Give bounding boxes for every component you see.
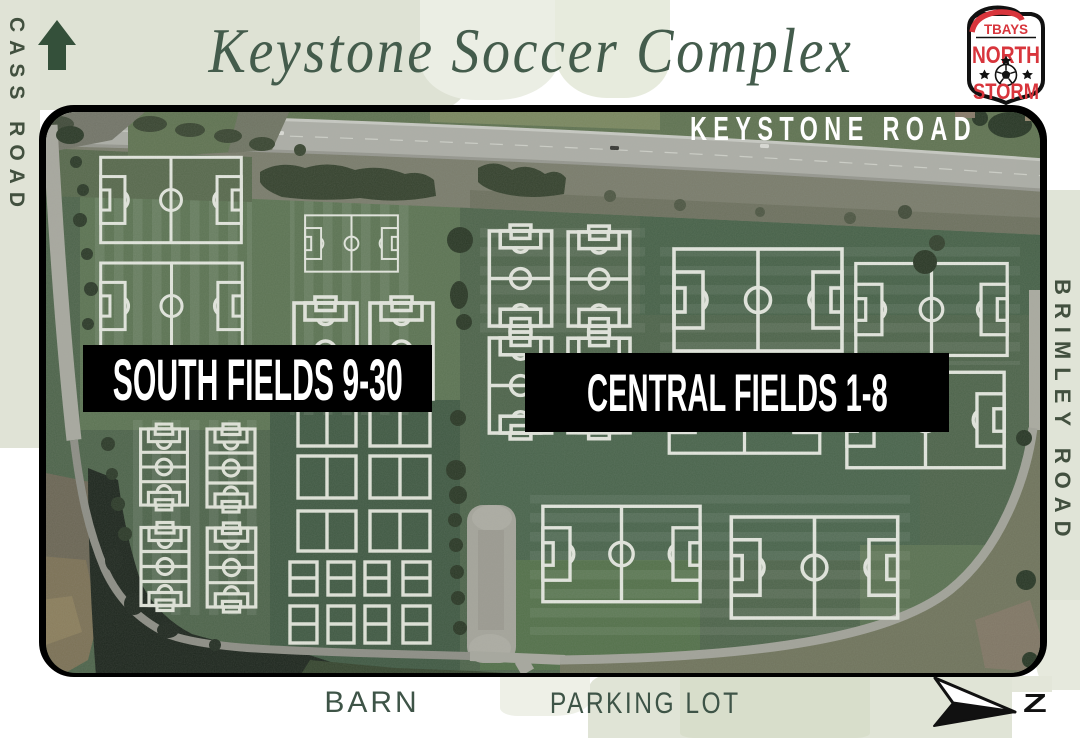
svg-text:STORM: STORM: [973, 79, 1039, 104]
svg-text:TBAYS: TBAYS: [984, 21, 1028, 37]
svg-text:Z: Z: [1023, 689, 1047, 718]
